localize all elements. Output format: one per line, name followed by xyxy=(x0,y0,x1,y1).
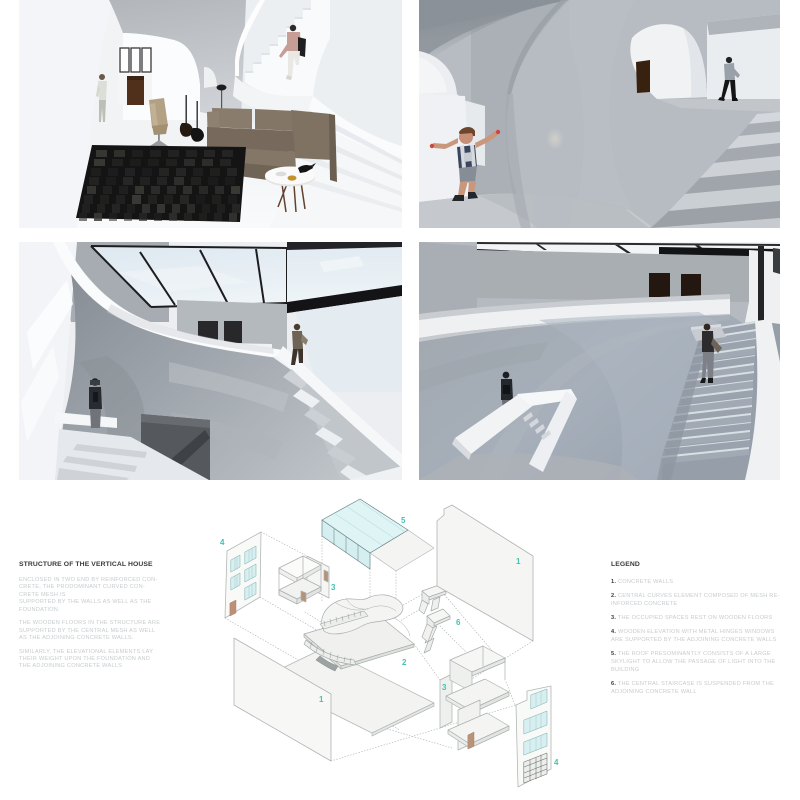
svg-text:1: 1 xyxy=(516,557,521,566)
svg-text:6: 6 xyxy=(456,618,461,627)
svg-text:1: 1 xyxy=(319,695,324,704)
svg-text:4: 4 xyxy=(220,538,225,547)
svg-text:4: 4 xyxy=(554,758,559,767)
svg-text:5: 5 xyxy=(401,516,406,525)
svg-text:2: 2 xyxy=(402,658,407,667)
svg-text:3: 3 xyxy=(331,583,336,592)
svg-text:3: 3 xyxy=(442,683,447,692)
